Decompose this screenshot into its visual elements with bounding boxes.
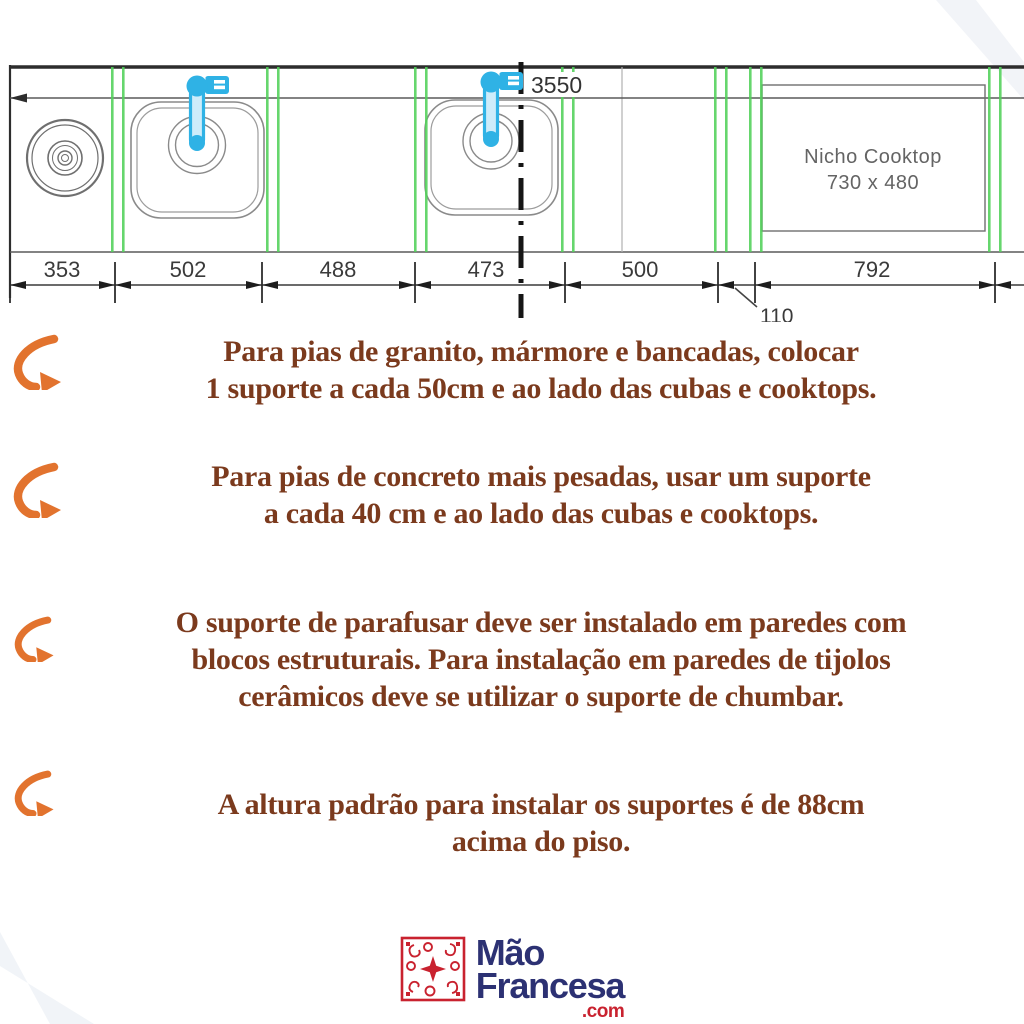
dim-473: 473 — [468, 257, 505, 282]
bullet-2-line-2: a cada 40 cm e ao lado das cubas e cookt… — [62, 495, 1020, 532]
curved-arrow-icon — [8, 462, 64, 518]
dim-502: 502 — [170, 257, 207, 282]
dim-500: 500 — [622, 257, 659, 282]
bullet-4-line-2: acima do piso. — [62, 823, 1020, 860]
bullet-3-line-1: O suporte de parafusar deve ser instalad… — [62, 604, 1020, 641]
logo-text: Mão Francesa .com — [476, 936, 625, 1021]
bullet-1: Para pias de granito, mármore e bancadas… — [62, 333, 1020, 407]
faucet-icon — [187, 76, 230, 152]
round-sink — [27, 120, 103, 196]
dimension-row: 353 502 488 473 500 792 110 — [10, 257, 1024, 322]
dim-488: 488 — [320, 257, 357, 282]
total-length-label: 3550 — [526, 72, 590, 98]
nicho-cooktop-title: Nicho Cooktop — [804, 146, 942, 168]
bullet-1-line-2: 1 suporte a cada 50cm e ao lado das cuba… — [62, 370, 1020, 407]
overall-dimension-line — [10, 94, 1024, 103]
bullet-3-line-3: cerâmicos deve se utilizar o suporte de … — [62, 678, 1020, 715]
bullet-3-line-2: blocos estruturais. Para instalação em p… — [62, 641, 1020, 678]
logo-star — [420, 956, 446, 982]
bullet-4-line-1: A altura padrão para instalar os suporte… — [62, 786, 1020, 823]
curved-arrow-icon — [8, 334, 64, 390]
bullet-2: Para pias de concreto mais pesadas, usar… — [62, 458, 1020, 532]
dim-110: 110 — [760, 305, 793, 322]
faucet-icon — [481, 72, 524, 148]
dim-792: 792 — [854, 257, 891, 282]
logo-tile-icon — [400, 936, 466, 1002]
brand-logo[interactable]: Mão Francesa .com — [0, 936, 1024, 1021]
bullet-4: A altura padrão para instalar os suporte… — [62, 786, 1020, 860]
nicho-cooktop-size: 730 x 480 — [827, 172, 919, 194]
curved-arrow-icon — [10, 770, 56, 816]
svg-text:3550: 3550 — [531, 72, 582, 98]
curved-arrow-icon — [10, 616, 56, 662]
bullet-1-line-1: Para pias de granito, mármore e bancadas… — [62, 333, 1020, 370]
countertop-technical-drawing: Nicho Cooktop 730 x 480 3550 — [0, 0, 1024, 322]
dim-353: 353 — [44, 257, 81, 282]
nicho-cooktop: Nicho Cooktop 730 x 480 — [762, 85, 985, 231]
logo-name-line-2: Francesa — [476, 969, 625, 1002]
bullet-3: O suporte de parafusar deve ser instalad… — [62, 604, 1020, 715]
bullet-2-line-1: Para pias de concreto mais pesadas, usar… — [62, 458, 1020, 495]
